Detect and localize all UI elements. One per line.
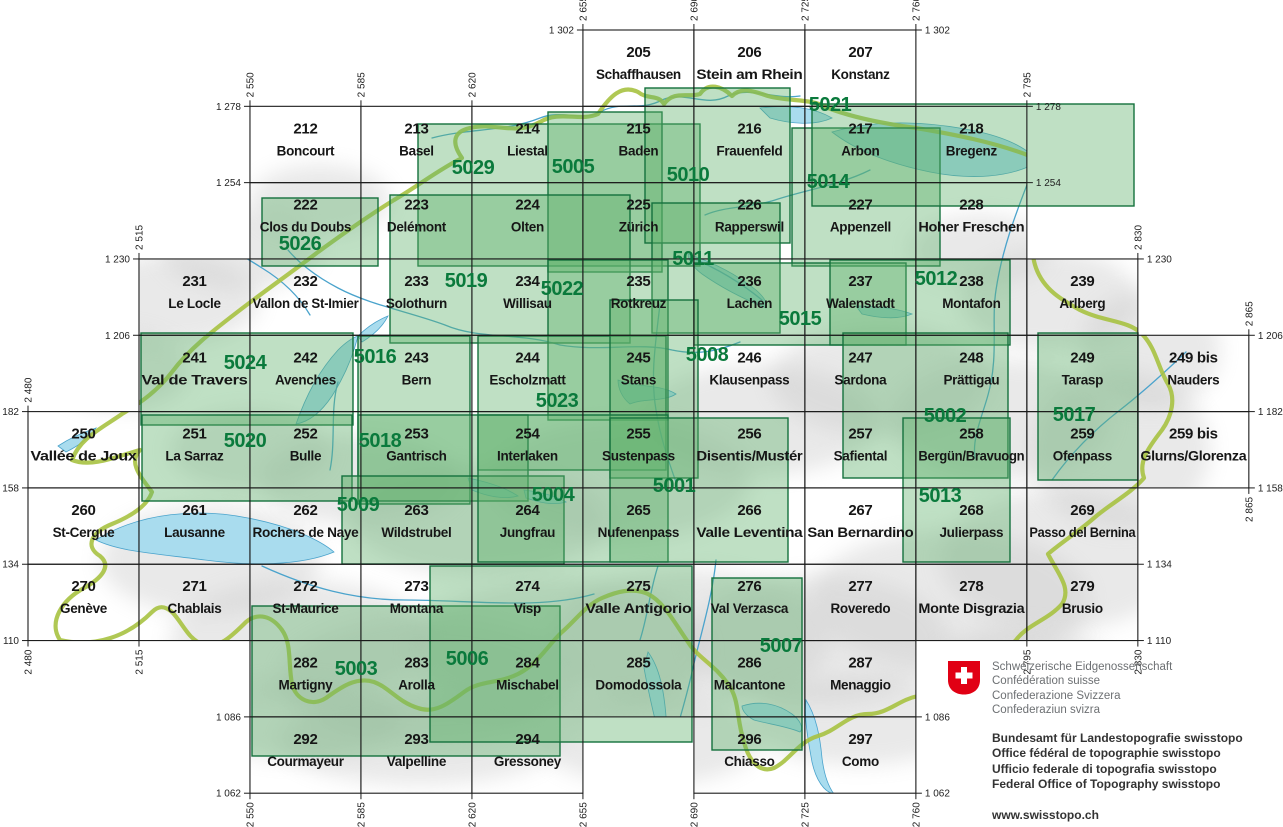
sheet-name: Val Verzasca: [711, 601, 789, 616]
swiss-confederation-logo: Schweizerische Eidgenossenschaft Confédé…: [947, 660, 1243, 822]
sheet-number: 268: [959, 502, 983, 519]
sheet-number: 259: [1070, 426, 1094, 443]
composite-number: 5029: [452, 157, 495, 179]
sheet-number: 231: [182, 273, 206, 290]
composite-number: 5015: [779, 308, 822, 330]
northing-label: 1 230: [105, 254, 130, 265]
easting-label: 2 515: [134, 224, 145, 249]
sheet-name: Basel: [399, 143, 434, 158]
sheet-name: Val de Travers: [141, 372, 247, 387]
sheet-name: Chablais: [168, 601, 222, 616]
northing-label: 1 086: [216, 712, 241, 723]
composite-number: 5024: [224, 352, 268, 374]
northing-label: 1 110: [1147, 636, 1172, 647]
sheet-name: Ofenpass: [1053, 449, 1112, 464]
sheet-name: Sardona: [834, 372, 887, 387]
northing-label: 1 182: [0, 407, 19, 418]
sheet-number: 227: [848, 197, 872, 214]
sheet-number: 256: [737, 426, 761, 443]
northing-label: 1 230: [1147, 254, 1172, 265]
sheet-number: 236: [737, 273, 761, 290]
sheet-name: Arolla: [398, 678, 435, 693]
sheet-name: La Sarraz: [165, 449, 224, 464]
sheet-number: 207: [848, 44, 872, 61]
sheet-name: Escholzmatt: [489, 372, 566, 387]
sheet-name: Bregenz: [946, 143, 998, 158]
sheet-number: 294: [515, 731, 540, 748]
sheet-name: Julierpass: [939, 525, 1003, 540]
sheet-number: 242: [293, 349, 317, 366]
sheet-number: 212: [293, 120, 317, 137]
sheet-name: Tarasp: [1062, 372, 1104, 387]
easting-label: 2 620: [467, 802, 478, 827]
sheet-name: Sustenpass: [602, 449, 675, 464]
sheet-number: 279: [1070, 578, 1094, 595]
easting-label: 2 585: [356, 802, 367, 827]
confederation-line: Confederaziun svizra: [992, 703, 1243, 717]
northing-label: 1 134: [1147, 560, 1172, 571]
office-line: Ufficio federale di topografia swisstopo: [992, 762, 1243, 778]
sheet-number: 257: [848, 426, 872, 443]
northing-label: 1 206: [1258, 331, 1283, 342]
northing-label: 1 254: [216, 178, 241, 189]
sheet-number: 287: [848, 655, 872, 672]
sheet-name: Como: [842, 754, 879, 769]
composite-number: 5006: [446, 648, 489, 670]
sheet-number: 249: [1070, 349, 1094, 366]
sheet-number: 272: [293, 578, 317, 595]
sheet-number: 282: [293, 655, 317, 672]
sheet-number: 246: [737, 349, 761, 366]
confederation-lines: Schweizerische Eidgenossenschaft Confédé…: [992, 660, 1243, 718]
sheet-number: 271: [182, 578, 206, 595]
sheet-number: 217: [848, 120, 872, 137]
sheet-number: 223: [404, 197, 428, 214]
sheet-number: 274: [515, 578, 540, 595]
sheet-name: Boncourt: [277, 143, 335, 158]
office-line: Office fédéral de topographie swisstopo: [992, 746, 1243, 762]
sheet-name: Visp: [514, 601, 541, 616]
sheet-name: Baden: [619, 143, 659, 158]
sheet-number: 228: [959, 197, 983, 214]
sheet-name: Menaggio: [830, 678, 891, 693]
northing-label: 1 254: [1036, 178, 1061, 189]
easting-label: 2 760: [911, 0, 922, 21]
sheet-name: Disentis/Mustér: [696, 449, 803, 464]
sheet-number: 259 bis: [1169, 426, 1218, 443]
sheet-name: Bulle: [290, 449, 322, 464]
sheet-name: Montafon: [942, 296, 1000, 311]
sheet-name: Lachen: [727, 296, 773, 311]
sheet-name: Frauenfeld: [716, 143, 782, 158]
easting-label: 2 830: [1133, 224, 1144, 249]
northing-label: 1 110: [0, 636, 19, 647]
sheet-number: 232: [293, 273, 317, 290]
sheet-name: Nauders: [1167, 372, 1219, 387]
sheet-number: 224: [515, 197, 540, 214]
composite-number: 5026: [279, 233, 322, 255]
sheet-number: 250: [71, 426, 95, 443]
sheet-name: Interlaken: [497, 449, 558, 464]
sheet-number: 225: [626, 197, 650, 214]
sheet-name: Passo del Bernina: [1029, 525, 1136, 540]
sheet-name: Valpelline: [387, 754, 447, 769]
sheet-number: 253: [404, 426, 428, 443]
sheet-number: 284: [515, 655, 540, 672]
sheet-number: 262: [293, 502, 317, 519]
sheet-number: 269: [1070, 502, 1094, 519]
sheet-number: 234: [515, 273, 540, 290]
composite-number: 5019: [445, 270, 488, 292]
sheet-number: 254: [515, 426, 540, 443]
sheet-number: 237: [848, 273, 872, 290]
sheet-name: Klausenpass: [709, 372, 789, 387]
office-line: Bundesamt für Landestopografie swisstopo: [992, 731, 1243, 747]
composite-number: 5010: [667, 164, 710, 186]
sheet-number: 216: [737, 120, 761, 137]
sheet-name: Courmayeur: [267, 754, 345, 769]
sheet-name: Rochers de Naye: [252, 525, 359, 540]
northing-label: 1 278: [1036, 102, 1061, 113]
sheet-name: Lausanne: [164, 525, 225, 540]
sheet-name: Zürich: [619, 220, 659, 235]
easting-label: 2 690: [689, 0, 700, 21]
composite-number: 5020: [224, 430, 267, 452]
sheet-name: Hoher Freschen: [918, 220, 1024, 235]
sheet-name: Safiental: [834, 449, 888, 464]
sheet-name: Le Locle: [168, 296, 221, 311]
easting-label: 2 480: [24, 649, 35, 674]
sheet-name: Gressoney: [494, 754, 562, 769]
sheet-number: 251: [182, 426, 206, 443]
sheet-name: Roveredo: [830, 601, 890, 616]
sheet-name: St-Cergue: [53, 525, 116, 540]
sheet-name: Solothurn: [386, 296, 447, 311]
sheet-number: 270: [71, 578, 95, 595]
sheet-name: Martigny: [279, 678, 334, 693]
easting-label: 2 655: [578, 802, 589, 827]
sheet-name: Monte Disgrazia: [918, 601, 1025, 616]
sheet-number: 296: [737, 731, 761, 748]
sheet-number: 205: [626, 44, 650, 61]
sheet-number: 248: [959, 349, 983, 366]
sheet-number: 206: [737, 44, 761, 61]
sheet-name: Glurns/Glorenza: [1140, 449, 1247, 464]
sheet-number: 215: [626, 120, 650, 137]
sheet-number: 278: [959, 578, 983, 595]
sheet-name: Stans: [621, 372, 656, 387]
sheet-number: 267: [848, 502, 872, 519]
composite-number: 5023: [536, 390, 579, 412]
easting-label: 2 865: [1244, 496, 1255, 521]
sheet-number: 258: [959, 426, 983, 443]
sheet-name: Rotkreuz: [611, 296, 667, 311]
office-line: Federal Office of Topography swisstopo: [992, 777, 1243, 793]
composite-number: 5003: [335, 658, 378, 680]
sheet-number: 266: [737, 502, 761, 519]
sheet-number: 226: [737, 197, 761, 214]
sheet-number: 218: [959, 120, 983, 137]
sheet-name: Arbon: [841, 143, 879, 158]
composite-number: 5007: [760, 635, 803, 657]
sheet-name: Stein am Rhein: [696, 67, 802, 82]
sheet-name: Domodossola: [595, 678, 682, 693]
northing-label: 1 134: [0, 560, 19, 571]
swisstopo-sheet-index: 205Schaffhausen206Stein am Rhein207Konst…: [0, 0, 1283, 827]
sheet-number: 247: [848, 349, 872, 366]
sheet-name: Malcantone: [714, 678, 786, 693]
easting-label: 2 725: [800, 0, 811, 21]
easting-label: 2 585: [356, 72, 367, 97]
sheet-number: 213: [404, 120, 428, 137]
composite-number: 5021: [809, 94, 852, 116]
composite-number: 5002: [924, 405, 967, 427]
northing-label: 1 182: [1258, 407, 1283, 418]
sheet-name: Chiasso: [724, 754, 774, 769]
easting-label: 2 550: [245, 72, 256, 97]
northing-label: 1 302: [549, 26, 574, 37]
easting-label: 2 480: [24, 377, 35, 402]
sheet-name: Delémont: [387, 220, 447, 235]
composite-number: 5011: [672, 248, 714, 270]
easting-label: 2 795: [1022, 72, 1033, 97]
sheet-name: Schaffhausen: [596, 67, 681, 82]
easting-label: 2 725: [800, 802, 811, 827]
composite-number: 5004: [532, 484, 576, 506]
sheet-number: 263: [404, 502, 428, 519]
swisstopo-url[interactable]: www.swisstopo.ch: [992, 808, 1243, 822]
sheet-number: 276: [737, 578, 761, 595]
sheet-number: 286: [737, 655, 761, 672]
composite-number: 5012: [915, 268, 958, 290]
sheet-number: 249 bis: [1169, 349, 1218, 366]
composite-number: 5013: [919, 485, 962, 507]
composite-number: 5005: [552, 156, 595, 178]
sheet-name: Wildstrubel: [381, 525, 451, 540]
sheet-name: Montana: [390, 601, 444, 616]
northing-label: 1 158: [1258, 483, 1283, 494]
composite-number: 5001: [653, 475, 696, 497]
sheet-name: St-Maurice: [272, 601, 339, 616]
sheet-name: Walenstadt: [826, 296, 895, 311]
sheet-number: 285: [626, 655, 650, 672]
sheet-name: Mischabel: [496, 678, 559, 693]
confederation-line: Schweizerische Eidgenossenschaft: [992, 660, 1243, 674]
cross-horizontal: [956, 673, 973, 679]
easting-label: 2 515: [134, 649, 145, 674]
sheet-number: 255: [626, 426, 650, 443]
sheet-name: Valle Leventina: [696, 525, 803, 540]
sheet-name: Bergün/Bravuogn: [918, 449, 1024, 464]
composite-number: 5022: [541, 278, 584, 300]
sheet-name: Valle Antigorio: [585, 601, 691, 616]
easting-label: 2 760: [911, 802, 922, 827]
easting-label: 2 550: [245, 802, 256, 827]
composite-number: 5016: [354, 346, 397, 368]
sheet-name: Brusio: [1062, 601, 1103, 616]
confederation-line: Confederazione Svizzera: [992, 689, 1243, 703]
sheet-number: 283: [404, 655, 428, 672]
sheet-number: 241: [182, 349, 206, 366]
sheet-name: Vallée de Joux: [30, 449, 137, 464]
sheet-name: Appenzell: [830, 220, 891, 235]
northing-label: 1 302: [925, 26, 950, 37]
northing-label: 1 158: [0, 483, 19, 494]
easting-label: 2 690: [689, 802, 700, 827]
sheet-name: Olten: [511, 220, 544, 235]
sheet-name: San Bernardino: [807, 525, 913, 540]
sheet-name: Bern: [402, 372, 432, 387]
sheet-number: 273: [404, 578, 428, 595]
northing-label: 1 206: [105, 331, 130, 342]
sheet-number: 233: [404, 273, 428, 290]
easting-label: 2 655: [578, 0, 589, 21]
sheet-name: Konstanz: [831, 67, 890, 82]
sheet-number: 292: [293, 731, 317, 748]
sheet-number: 265: [626, 502, 650, 519]
northing-label: 1 062: [216, 789, 241, 800]
sheet-number: 277: [848, 578, 872, 595]
composite-number: 5017: [1053, 404, 1096, 426]
composite-number: 5009: [337, 494, 380, 516]
sheet-name: Liestal: [507, 143, 548, 158]
sheet-number: 297: [848, 731, 872, 748]
composite-number: 5018: [359, 430, 402, 452]
swiss-shield-icon: [947, 660, 981, 696]
sheet-number: 239: [1070, 273, 1094, 290]
sheet-number: 238: [959, 273, 983, 290]
sheet-number: 214: [515, 120, 540, 137]
sheet-name: Vallon de St-Imier: [252, 296, 359, 311]
sheet-name: Nufenenpass: [598, 525, 679, 540]
sheet-number: 245: [626, 349, 650, 366]
sheet-number: 244: [515, 349, 540, 366]
office-lines: Bundesamt für Landestopografie swisstopo…: [992, 731, 1243, 793]
logo-text-block: Schweizerische Eidgenossenschaft Confédé…: [992, 660, 1243, 822]
sheet-number: 260: [71, 502, 95, 519]
sheet-name: Rapperswil: [715, 220, 784, 235]
easting-label: 2 620: [467, 72, 478, 97]
sheet-name: Prättigau: [943, 372, 999, 387]
confederation-line: Confédération suisse: [992, 674, 1243, 688]
sheet-number: 261: [182, 502, 206, 519]
sheet-name: Avenches: [275, 372, 336, 387]
sheet-number: 275: [626, 578, 650, 595]
sheet-number: 222: [293, 197, 317, 214]
sheet-name: Arlberg: [1059, 296, 1105, 311]
sheet-name: Jungfrau: [500, 525, 555, 540]
easting-label: 2 865: [1244, 301, 1255, 326]
sheet-name: Genève: [60, 601, 108, 616]
composite-number: 5014: [807, 171, 851, 193]
sheet-number: 235: [626, 273, 650, 290]
sheet-number: 243: [404, 349, 428, 366]
composite-number: 5008: [686, 344, 729, 366]
sheet-number: 252: [293, 426, 317, 443]
northing-label: 1 278: [216, 102, 241, 113]
sheet-number: 293: [404, 731, 428, 748]
